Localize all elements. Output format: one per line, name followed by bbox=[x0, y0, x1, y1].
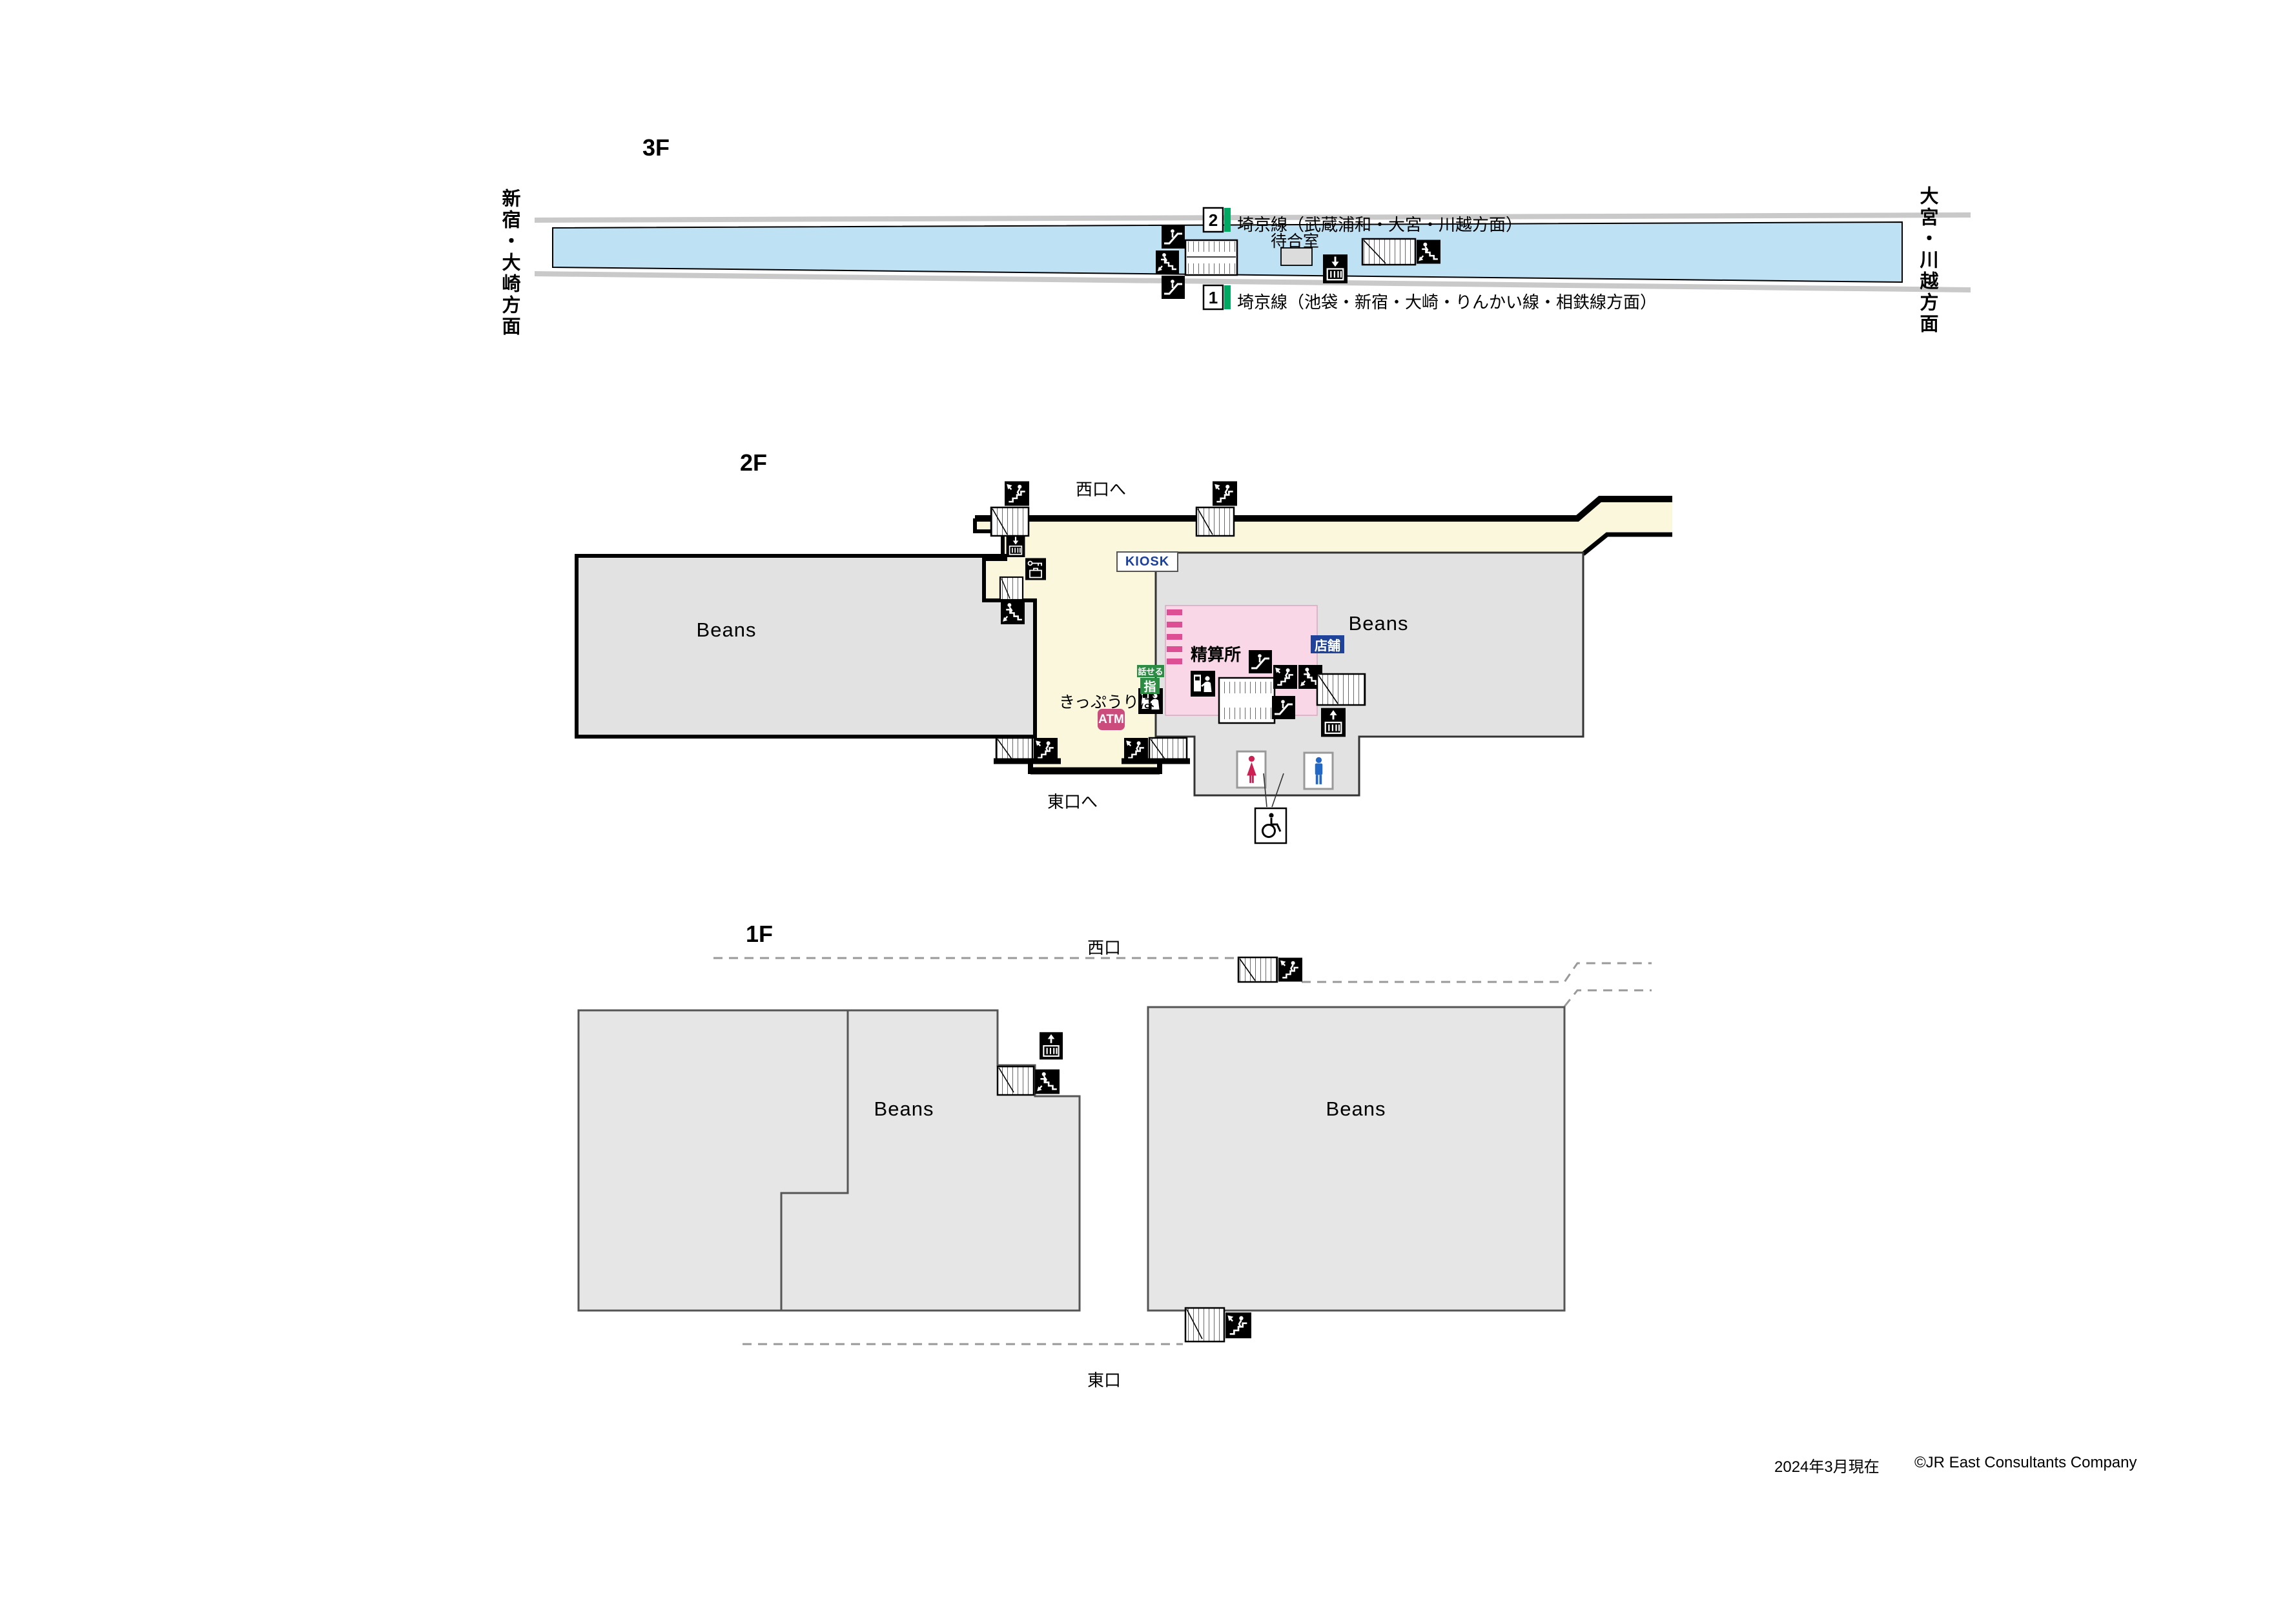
elevator-up-icon bbox=[1040, 1032, 1063, 1059]
escalator-icon bbox=[1162, 276, 1185, 299]
floor2-concourse-level bbox=[577, 482, 1672, 844]
stairs-structure bbox=[1362, 239, 1415, 265]
station-floor-map: 3F 新宿・大崎方面 大宮・川越方面 2 埼京線（武蔵浦和・大宮・川越方面） 1… bbox=[0, 0, 2296, 1623]
direction-left-label: 新宿・大崎方面 bbox=[496, 189, 523, 338]
beans-right-building bbox=[1148, 1007, 1564, 1311]
escalator-structure bbox=[1185, 240, 1237, 275]
stairs-down-icon bbox=[1156, 250, 1179, 274]
stairs-up-icon bbox=[1225, 1312, 1251, 1338]
stairs-structure bbox=[991, 507, 1029, 536]
waiting-room-label: 待合室 bbox=[1271, 229, 1319, 252]
escalator-structure bbox=[1219, 678, 1275, 723]
ticket-machine-icon bbox=[1191, 671, 1215, 697]
elevator-down-icon bbox=[1323, 254, 1348, 283]
stairs-up-icon bbox=[1278, 958, 1302, 982]
beans-right-label: Beans bbox=[1330, 612, 1427, 635]
elevator-down-icon bbox=[1007, 535, 1025, 557]
beans-left-label: Beans bbox=[684, 618, 768, 642]
kiosk-label: KIOSK bbox=[1116, 551, 1178, 572]
escalator-icon bbox=[1249, 650, 1272, 673]
beans-right-label: Beans bbox=[1307, 1097, 1404, 1121]
stairs-structure bbox=[1185, 1308, 1224, 1342]
stairs-up-icon bbox=[1213, 482, 1237, 506]
map-credit: ©JR East Consultants Company bbox=[1914, 1454, 2137, 1472]
west-exit-label: 西口 bbox=[1087, 935, 1121, 959]
direction-right-label: 大宮・川越方面 bbox=[1914, 186, 1941, 335]
map-geometry bbox=[0, 0, 2296, 1623]
talkable-machine-label: 話せる bbox=[1137, 665, 1164, 677]
escalator-icon bbox=[1272, 696, 1295, 719]
coin-locker-icon bbox=[1025, 558, 1046, 580]
stairs-up-icon bbox=[1124, 738, 1148, 762]
escalator-icon bbox=[1162, 225, 1185, 249]
stairs-down-icon bbox=[1001, 600, 1025, 624]
platform1-line-label: 埼京線（池袋・新宿・大崎・りんかい線・相鉄線方面） bbox=[1237, 289, 1657, 313]
east-exit-label: 東口 bbox=[1087, 1367, 1121, 1391]
atm-badge: ATM bbox=[1098, 709, 1125, 730]
to-west-exit-label: 西口へ bbox=[1076, 476, 1126, 500]
platform2-number: 2 bbox=[1204, 210, 1223, 230]
shop-label: 店舗 bbox=[1311, 635, 1344, 653]
platform2-line-color-bar bbox=[1224, 208, 1231, 232]
stairs-structure bbox=[1149, 738, 1187, 761]
elevator-up-icon bbox=[1321, 708, 1346, 737]
concourse-north-wall bbox=[975, 499, 1672, 518]
map-date: 2024年3月現在 bbox=[1774, 1454, 1880, 1476]
stairs-structure bbox=[1238, 957, 1277, 982]
stairs-structure bbox=[1196, 507, 1234, 536]
stairs-structure bbox=[1317, 674, 1365, 705]
stairs-down-icon bbox=[1417, 240, 1440, 264]
stairs-structure bbox=[998, 1067, 1034, 1095]
to-east-exit-label: 東口へ bbox=[1047, 789, 1098, 813]
stairs-structure bbox=[1000, 577, 1023, 600]
stairs-up-icon bbox=[1005, 482, 1029, 506]
beans-left-building bbox=[577, 556, 1035, 737]
floor1-ground-level bbox=[579, 957, 1652, 1344]
stairs-down-icon bbox=[1035, 1070, 1060, 1094]
beans-center-label: Beans bbox=[859, 1097, 949, 1121]
stairs-up-icon bbox=[1034, 738, 1058, 762]
platform1-number: 1 bbox=[1204, 288, 1223, 308]
floor2-label: 2F bbox=[740, 449, 767, 476]
platform1-line-color-bar bbox=[1224, 285, 1231, 309]
fare-adjustment-label: 精算所 bbox=[1191, 642, 1241, 666]
stairs-up-icon bbox=[1273, 665, 1297, 689]
stairs-structure bbox=[996, 738, 1032, 761]
floor1-label: 1F bbox=[746, 921, 773, 948]
floor3-label: 3F bbox=[642, 134, 670, 161]
